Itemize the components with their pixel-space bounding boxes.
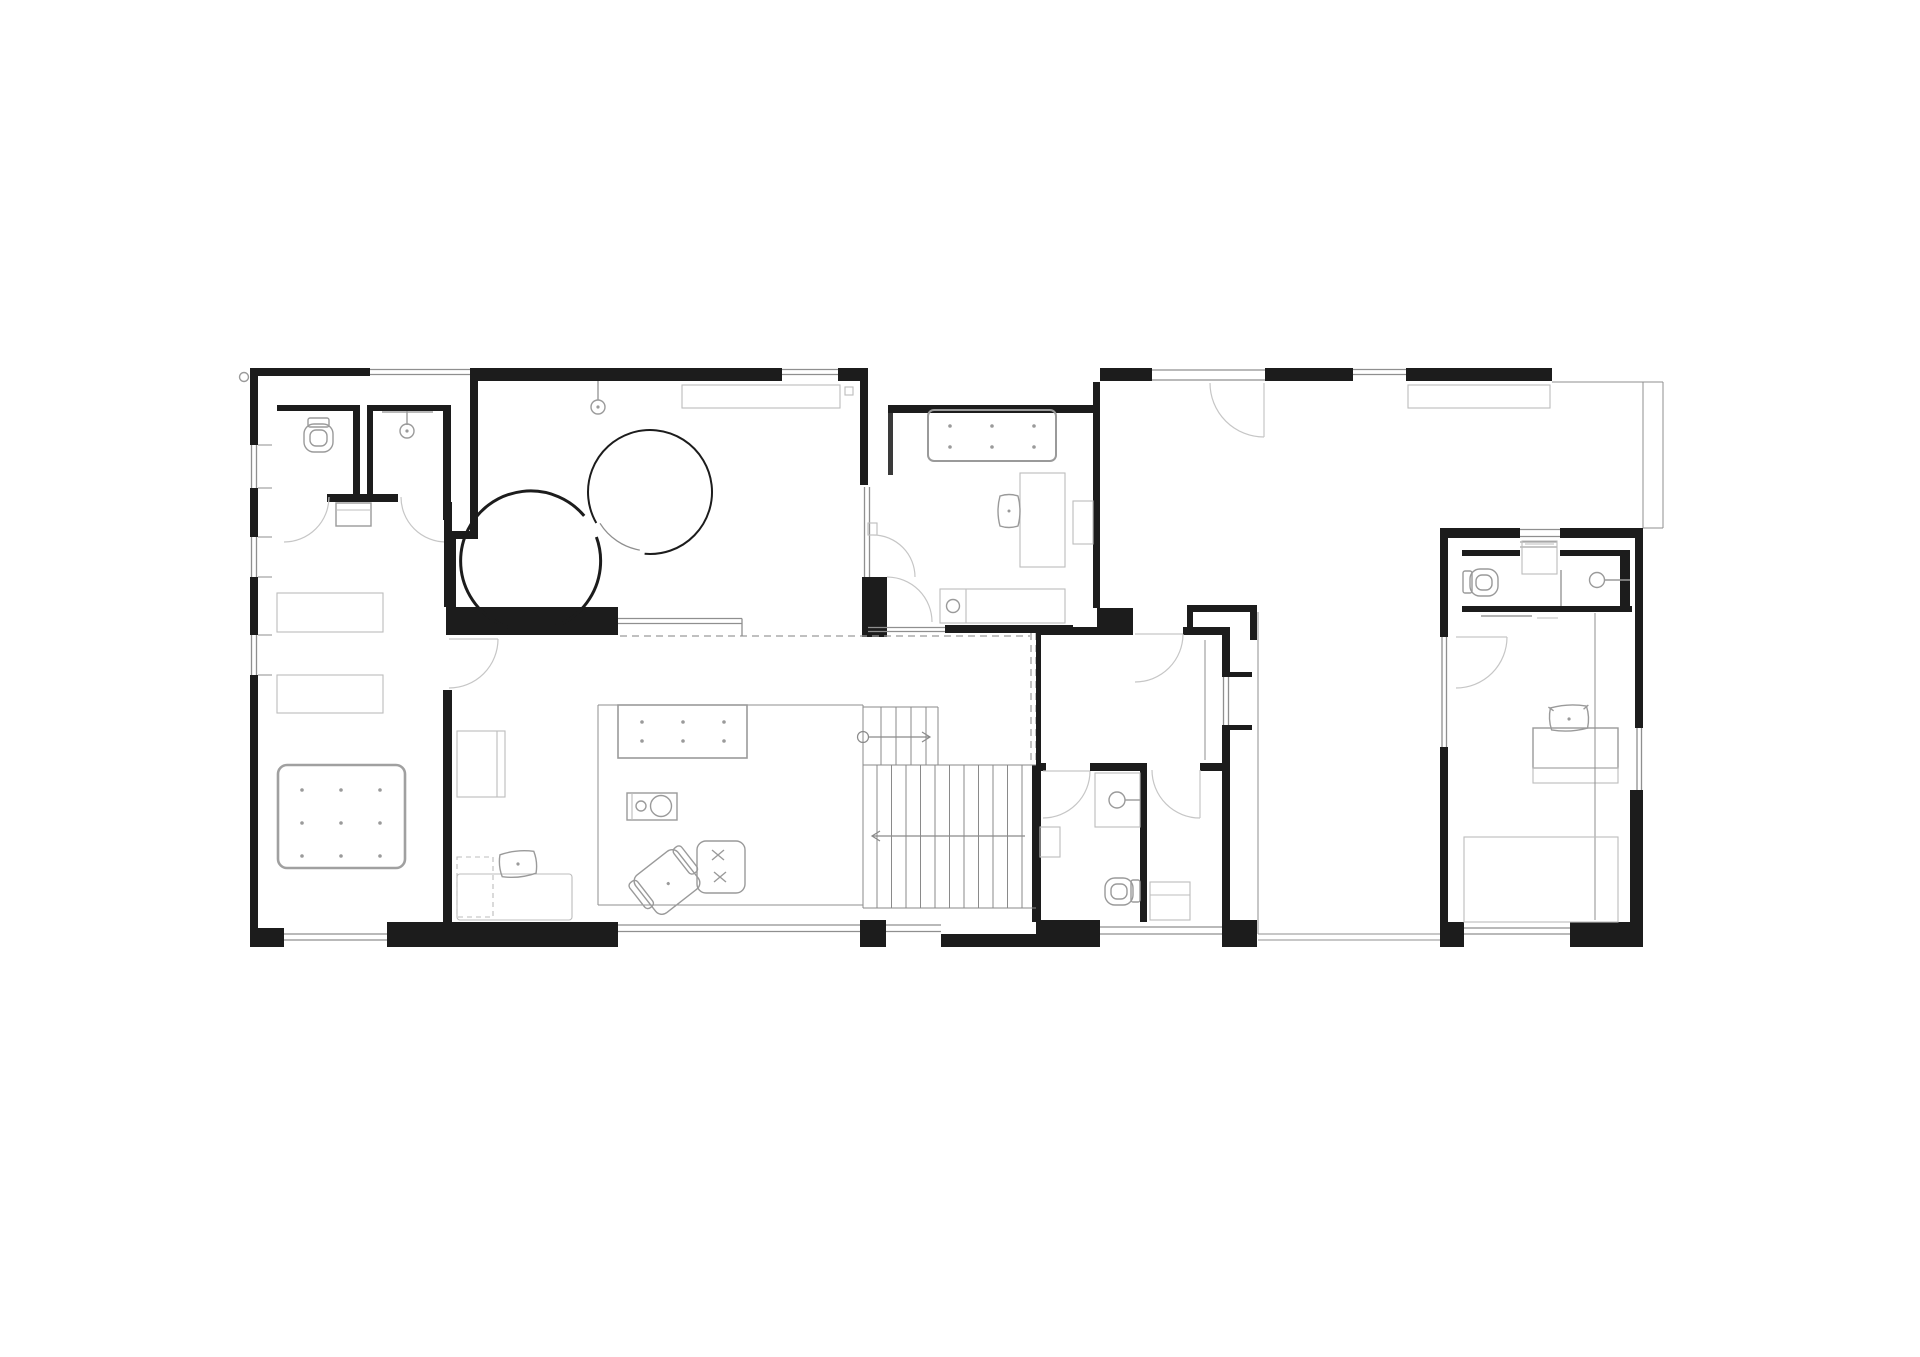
window-wing-east	[1637, 728, 1642, 790]
window-bottom-3	[886, 925, 941, 932]
bed-with-pillow	[1533, 704, 1618, 783]
entry-door-top	[1210, 383, 1264, 437]
door-dressing-to-living	[449, 639, 498, 688]
bed-middle-bedroom	[928, 410, 1056, 461]
roof-void-dashed-line	[618, 619, 1036, 764]
stair-arrow-return	[872, 831, 1025, 841]
corridor-walls	[1036, 627, 1230, 765]
top-right-room	[1210, 383, 1550, 437]
window-wing-south	[1464, 928, 1570, 934]
patio-edge-line	[1258, 934, 1440, 940]
lounge-armchair	[626, 843, 708, 921]
double-bed	[278, 765, 405, 868]
right-wing-bathroom	[1463, 541, 1630, 596]
window-left-1	[252, 445, 273, 488]
window-top-4	[1353, 370, 1406, 375]
window-bottom-1	[284, 934, 387, 940]
kitchen-island	[618, 705, 747, 758]
door-right-wing-bedroom	[1456, 637, 1507, 688]
staircase	[858, 705, 1037, 908]
shower-room	[382, 411, 433, 438]
wardrobe-shelves	[277, 593, 383, 713]
downspout-marker	[240, 373, 249, 382]
middle-bedroom-walls	[860, 368, 1133, 637]
door-to-study	[1152, 770, 1200, 818]
window-left-2	[252, 537, 273, 577]
toilet-icon	[1105, 878, 1140, 905]
window-top-3	[1152, 370, 1265, 380]
desk-and-chair	[998, 473, 1065, 567]
wc-doors	[284, 497, 446, 542]
shower-icon	[1040, 827, 1060, 857]
vanity-sink-icon	[1095, 773, 1140, 827]
window-left-3	[252, 635, 273, 675]
floor-plan	[0, 0, 1920, 1357]
pendant-light-icon	[400, 411, 414, 438]
door-corridor-to-study	[1135, 634, 1183, 682]
window-top-2	[782, 370, 838, 375]
cabinet	[457, 731, 505, 797]
entry-mat	[1522, 541, 1557, 574]
toilet-icon	[304, 418, 333, 452]
window-niche	[1073, 501, 1093, 544]
window-bottom-2	[618, 925, 860, 932]
window-east	[1224, 677, 1229, 725]
window-bottom-4	[1100, 927, 1222, 934]
pendant-light-icon	[591, 381, 605, 414]
ottoman-stitched	[697, 841, 745, 893]
study-desk	[1150, 882, 1190, 920]
washbasin-unit	[336, 503, 371, 526]
dresser-with-basin	[940, 589, 1065, 623]
window-top-1	[370, 370, 470, 375]
sideboard	[1408, 385, 1550, 408]
window-wing-west	[1442, 637, 1447, 747]
door-to-bathroom	[1043, 771, 1090, 818]
cooktop-sink-unit	[627, 793, 677, 820]
daybed-with-pillow	[457, 849, 572, 920]
floor-plan-page	[0, 0, 1920, 1357]
terrace-outline	[1552, 382, 1663, 528]
stair-arrow-up	[858, 732, 931, 743]
toilet-icon	[1463, 569, 1498, 596]
wall-shelf	[682, 385, 853, 408]
circular-stair-enclosure	[461, 430, 712, 631]
